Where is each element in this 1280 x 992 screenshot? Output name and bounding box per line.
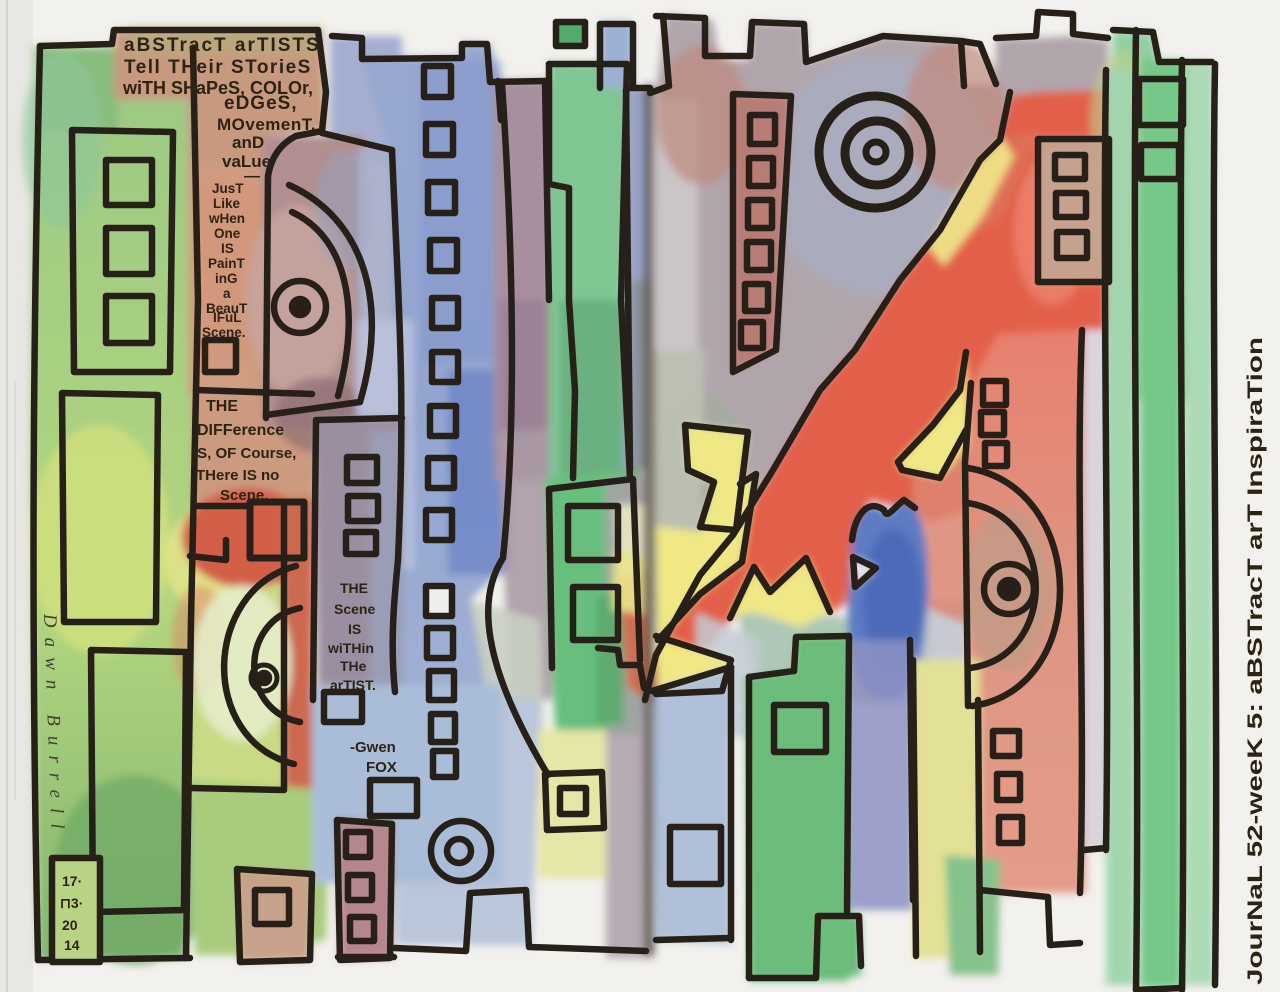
- svg-text:IS: IS: [221, 241, 234, 256]
- svg-text:THE: THE: [206, 398, 238, 415]
- svg-text:PainT: PainT: [208, 256, 246, 271]
- svg-text:20: 20: [62, 917, 78, 933]
- svg-text:THE: THE: [340, 580, 368, 596]
- svg-text:IS: IS: [348, 621, 361, 637]
- svg-text:⊓3·: ⊓3·: [60, 895, 83, 911]
- svg-text:One: One: [214, 226, 241, 241]
- svg-text:14: 14: [64, 937, 80, 953]
- svg-text:17·: 17·: [62, 873, 82, 889]
- svg-text:THere IS no: THere IS no: [196, 467, 279, 484]
- svg-text:eDGeS,: eDGeS,: [224, 93, 298, 114]
- svg-text:wHen: wHen: [208, 211, 245, 226]
- svg-text:IS, OF Course,: IS, OF Course,: [193, 445, 296, 462]
- svg-text:Scene.: Scene.: [220, 487, 268, 504]
- svg-text:Scene.: Scene.: [202, 325, 246, 340]
- svg-text:IFuL: IFuL: [213, 310, 242, 325]
- svg-text:JourNaL 52-weeK 5: aBSTracT ar: JourNaL 52-weeK 5: aBSTracT arT InspiraT…: [1244, 337, 1267, 985]
- svg-text:MOvemenT,: MOvemenT,: [217, 115, 316, 134]
- svg-text:THe: THe: [340, 658, 367, 674]
- svg-text:a: a: [223, 286, 231, 301]
- svg-text:FOX: FOX: [366, 759, 397, 776]
- svg-text:DIFFerence: DIFFerence: [197, 422, 284, 439]
- svg-text:Tell THeir STorieS: Tell THeir STorieS: [124, 57, 312, 78]
- svg-text:arTIST.: arTIST.: [330, 677, 376, 693]
- svg-text:aBSTracT arTISTS: aBSTracT arTISTS: [124, 35, 321, 56]
- svg-text:—: —: [244, 168, 260, 185]
- svg-text:anD: anD: [232, 133, 264, 152]
- svg-text:Scene: Scene: [334, 601, 375, 617]
- svg-text:wiTHin: wiTHin: [327, 640, 374, 656]
- svg-text:JusT: JusT: [212, 181, 244, 196]
- svg-text:Like: Like: [213, 196, 241, 211]
- svg-text:-Gwen: -Gwen: [350, 739, 396, 756]
- svg-text:inG: inG: [215, 271, 238, 286]
